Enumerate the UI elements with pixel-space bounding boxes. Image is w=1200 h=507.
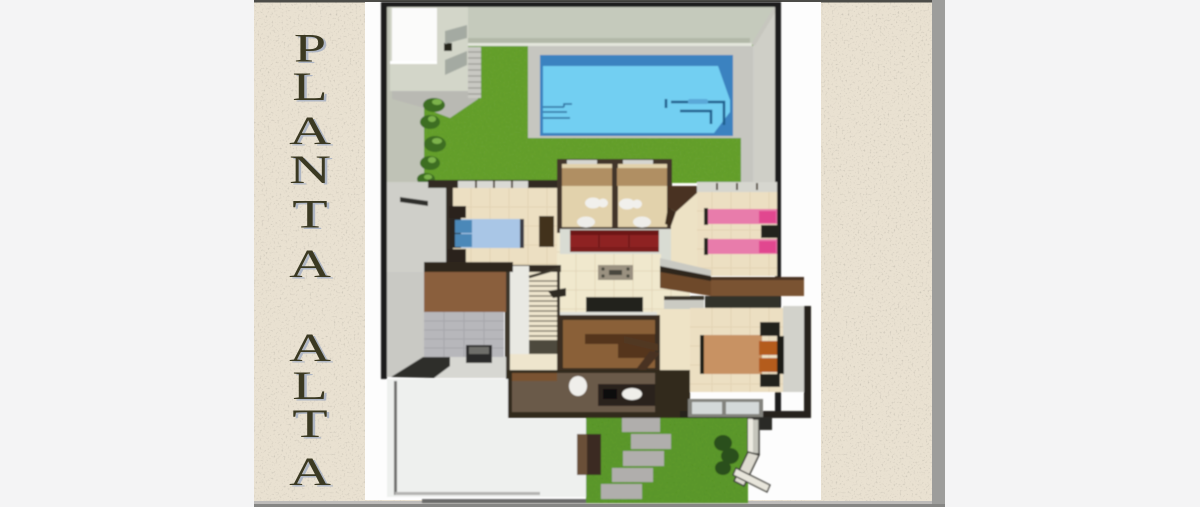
svg-text:A: A [289, 109, 331, 153]
svg-text:A: A [289, 450, 331, 494]
svg-text:T: T [292, 402, 327, 446]
svg-text:A: A [289, 242, 331, 286]
svg-text:T: T [292, 192, 327, 236]
svg-text:N: N [289, 148, 331, 192]
svg-text:L: L [292, 65, 327, 109]
